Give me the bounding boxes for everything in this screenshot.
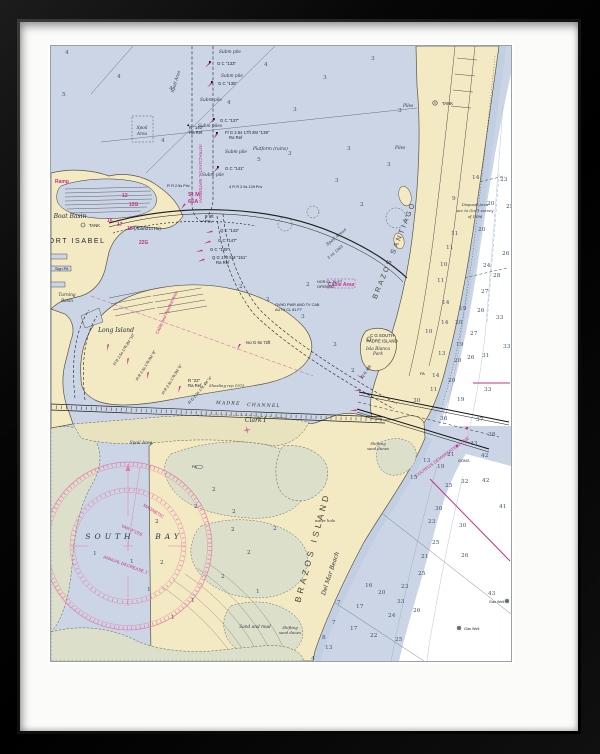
depth-sounding: 3 <box>288 151 292 157</box>
depth-sounding: 23 <box>401 584 409 590</box>
depth-sounding: 2 <box>239 284 243 290</box>
chart-label: CHANNEL <box>247 402 281 409</box>
chart-label: TANK <box>89 223 100 228</box>
depth-sounding: 20 <box>455 320 463 326</box>
chart-label: C G SOUTH <box>370 333 394 338</box>
depth-sounding: 23 <box>428 519 436 525</box>
depth-sounding: 38 <box>488 432 496 438</box>
chart-label: Subm pile <box>219 50 241 55</box>
depth-sounding: 11 <box>430 387 437 393</box>
chart-label: HOR CL 36 FT <box>317 280 343 284</box>
depth-sounding: 25 <box>418 571 426 577</box>
chart-label: Park <box>372 352 383 357</box>
chart-label: sand dunes <box>279 630 301 635</box>
chart-label: Priv <box>205 219 213 224</box>
depth-sounding: 10 <box>425 329 433 335</box>
depth-sounding: 1 <box>171 615 175 621</box>
chart-label: Ra Ref <box>216 260 230 265</box>
depth-sounding: 26 <box>467 355 475 361</box>
depth-sounding: 1 <box>93 551 97 557</box>
chart-label: Ra Ref <box>189 130 203 135</box>
chart-label: sand dunes <box>367 446 389 451</box>
chart-label: OPENING <box>317 285 335 289</box>
depth-sounding: 2 <box>221 574 225 580</box>
depth-sounding: 2 <box>160 560 164 566</box>
chart-label: PADRE ISLAND <box>366 339 397 344</box>
chart-label: Ramp <box>55 179 69 185</box>
chart-label: G C "137" <box>220 118 240 123</box>
chart-canvas: 4544433333335442322332222222112112212114… <box>51 46 511 661</box>
depth-sounding: 19 <box>456 342 464 348</box>
depth-sounding: 3 <box>323 75 327 81</box>
depth-sounding: 26 <box>413 608 421 614</box>
chart-label: SOUTH <box>85 532 134 541</box>
picture-frame: 4544433333335442322332222222112112212114… <box>0 0 600 754</box>
depth-sounding: 41 <box>499 504 506 510</box>
depth-sounding: 2 <box>231 527 235 533</box>
depth-sounding: 16 <box>365 583 373 589</box>
chart-label: Turning <box>58 293 76 298</box>
depth-sounding: 4 <box>311 656 315 661</box>
depth-sounding: 3 <box>387 162 391 168</box>
depth-sounding: 2 <box>306 282 310 288</box>
chart-label: AUTH CL 81 FT <box>275 308 303 312</box>
chart-label: Sand and mud <box>239 625 271 630</box>
depth-sounding: 7 <box>332 620 336 626</box>
depth-sounding: 30 <box>435 506 443 512</box>
chart-label: Long Island <box>97 327 134 334</box>
depth-sounding: 33 <box>496 315 504 321</box>
chart-label: Subm pile <box>202 173 224 178</box>
chart-label: G C "141" <box>225 166 245 171</box>
depth-sounding: 4 <box>161 138 165 144</box>
depth-sounding: 37 <box>476 417 484 423</box>
depth-sounding: 25 <box>445 483 453 489</box>
chart-label: Subm pile <box>221 74 243 79</box>
depth-sounding: 21 <box>421 554 428 560</box>
chart-label: (Aband Lt Ho) <box>134 226 161 231</box>
depth-sounding: 7 <box>337 600 341 606</box>
chart-label: TANK <box>442 101 453 106</box>
chart-label: G C "147" <box>218 238 238 243</box>
depth-sounding: 9 <box>452 196 456 202</box>
chart-label: Spoil <box>136 126 148 131</box>
depth-sounding: 3 <box>293 107 297 113</box>
depth-sounding: 2 <box>155 519 159 525</box>
chart-label: GONG <box>458 459 470 463</box>
depth-sounding: 13 <box>325 645 333 651</box>
depth-sounding: 11 <box>437 278 444 284</box>
depth-sounding: 22 <box>370 633 378 639</box>
chart-label: BAY <box>154 532 183 541</box>
depth-sounding: 2 <box>232 509 236 515</box>
chart-label: G C "133" <box>217 61 237 66</box>
depth-sounding: 19 <box>457 397 465 403</box>
chart-label: acc to Gov't survey <box>457 208 495 213</box>
chart-label: Piles <box>394 146 406 151</box>
depth-sounding: 19 <box>459 306 467 312</box>
depth-sounding: 11 <box>446 245 453 251</box>
depth-sounding: 43 <box>470 441 478 447</box>
depth-sounding: 20 <box>448 378 456 384</box>
depth-sounding: 36 <box>440 416 448 422</box>
chart-label: PA <box>192 465 197 469</box>
depth-sounding: 2 <box>273 526 277 532</box>
depth-sounding: 1 <box>191 598 195 604</box>
chart-label: Fl R 2.5s Priv <box>167 184 190 188</box>
depth-sounding: 13 <box>438 351 446 357</box>
chart-label: 66A <box>188 199 198 205</box>
depth-sounding: 2 <box>360 202 364 208</box>
depth-sounding: 14 <box>441 320 449 326</box>
depth-sounding: 24 <box>483 263 491 269</box>
chart-label: 17 <box>117 222 123 228</box>
depth-sounding: 26 <box>502 251 510 257</box>
chart-label: 22G <box>139 240 149 246</box>
chart-label: Platform (ruins) <box>252 147 288 152</box>
depth-sounding: 30 <box>459 523 467 529</box>
depth-sounding: 28 <box>493 273 501 279</box>
chart-label: 4 Fl R 2.5s 12ft Priv <box>229 185 262 189</box>
chart-label: Subm piles <box>198 124 223 129</box>
chart-label: Shoaling rep 1973 <box>209 383 245 388</box>
chart-label: Clark I <box>245 417 266 424</box>
chart-label: Area <box>136 132 148 137</box>
depth-sounding: 4 <box>117 74 121 80</box>
chart-label: Subm pile <box>225 150 247 155</box>
depth-sounding: 3 <box>335 178 339 184</box>
depth-sounding: 14 <box>432 373 440 379</box>
depth-sounding: 3 <box>347 146 351 152</box>
depth-sounding: 1 <box>147 587 151 593</box>
depth-sounding: 5 <box>257 157 261 163</box>
chart-label: Subm pile <box>200 98 222 103</box>
depth-sounding: 4 <box>227 100 231 106</box>
depth-sounding: 25 <box>506 204 511 210</box>
depth-sounding: 14 <box>472 175 480 181</box>
chart-label: Gas Well <box>464 627 479 631</box>
chart-label: Disposal Area <box>461 202 489 207</box>
depth-sounding: 3 <box>371 56 375 62</box>
depth-sounding: 19 <box>437 464 445 470</box>
depth-sounding: 25 <box>432 540 440 546</box>
chart-label: 16 <box>107 218 113 224</box>
buoy <box>466 427 469 430</box>
chart-label: 18 <box>127 226 133 232</box>
depth-sounding: 4 <box>264 62 268 68</box>
depth-sounding: 33 <box>503 344 511 350</box>
chart-label: MADRE <box>215 400 241 407</box>
chart-label: Basin <box>60 299 73 304</box>
chart-label: St M <box>188 192 200 198</box>
depth-sounding: 3 <box>333 342 337 348</box>
chart-label: Gas Well <box>489 600 504 604</box>
depth-sounding: 26 <box>461 553 469 559</box>
chart-label: G C "149" <box>210 247 230 252</box>
depth-sounding: 42 <box>481 453 489 459</box>
depth-sounding: 2 <box>194 504 198 510</box>
depth-sounding: 32 <box>461 479 469 485</box>
depth-sounding: 33 <box>397 599 405 605</box>
depth-sounding: 20 <box>478 227 486 233</box>
chart-label: Piles <box>402 104 414 109</box>
chart-label: 12G <box>129 202 139 208</box>
depth-sounding: 1 <box>256 589 260 595</box>
depth-sounding: 2 <box>351 368 355 374</box>
depth-sounding: 17 <box>350 626 358 632</box>
depth-sounding: 24 <box>388 613 396 619</box>
chart-label: Ra Ref <box>229 135 243 140</box>
chart-label: Sign PA <box>55 267 69 271</box>
chart-label: OVHD PWR AND TV CAB <box>275 303 320 307</box>
depth-sounding: 8 <box>322 635 326 641</box>
depth-sounding: 3 <box>301 314 305 320</box>
depth-sounding: 42 <box>482 478 490 484</box>
chart-label: Q C "143" <box>220 228 240 233</box>
depth-sounding: 14 <box>442 300 450 306</box>
depth-sounding: 43 <box>488 591 496 597</box>
chart-label: Spoil Area <box>130 441 153 446</box>
depth-sounding: 30 <box>413 398 421 404</box>
depth-sounding: 17 <box>356 604 364 610</box>
depth-sounding: 2 <box>212 487 216 493</box>
chart-label: 12 <box>122 193 128 199</box>
chart-label: PORT ISABEL <box>51 238 106 245</box>
depth-sounding: 5 <box>62 92 66 98</box>
depth-sounding: 11 <box>451 231 458 237</box>
depth-sounding: 10 <box>440 262 448 268</box>
chart-label: water hole <box>315 518 336 523</box>
depth-sounding: 25 <box>395 637 403 643</box>
chart-label: Boat Basin <box>53 213 87 220</box>
nautical-chart: 4544433333335442322332222222112112212114… <box>51 46 511 661</box>
depth-sounding: 31 <box>482 353 489 359</box>
depth-sounding: 20 <box>454 358 462 364</box>
chart-label: of 1996 <box>468 214 483 219</box>
depth-sounding: 23 <box>500 177 508 183</box>
depth-sounding: 2 <box>266 297 270 303</box>
depth-sounding: 33 <box>484 387 492 393</box>
chart-label: G C "135" <box>218 81 238 86</box>
chart-label: PA <box>420 372 425 376</box>
depth-sounding: 3 <box>398 108 402 114</box>
depth-sounding: 20 <box>378 590 386 596</box>
depth-sounding: 27 <box>481 289 489 295</box>
depth-sounding: 27 <box>470 331 478 337</box>
chart-label: Iso G 6s 72ft <box>246 340 271 345</box>
depth-sounding: 2 <box>247 550 251 556</box>
depth-sounding: 26 <box>477 308 485 314</box>
depth-sounding: 4 <box>65 50 69 56</box>
